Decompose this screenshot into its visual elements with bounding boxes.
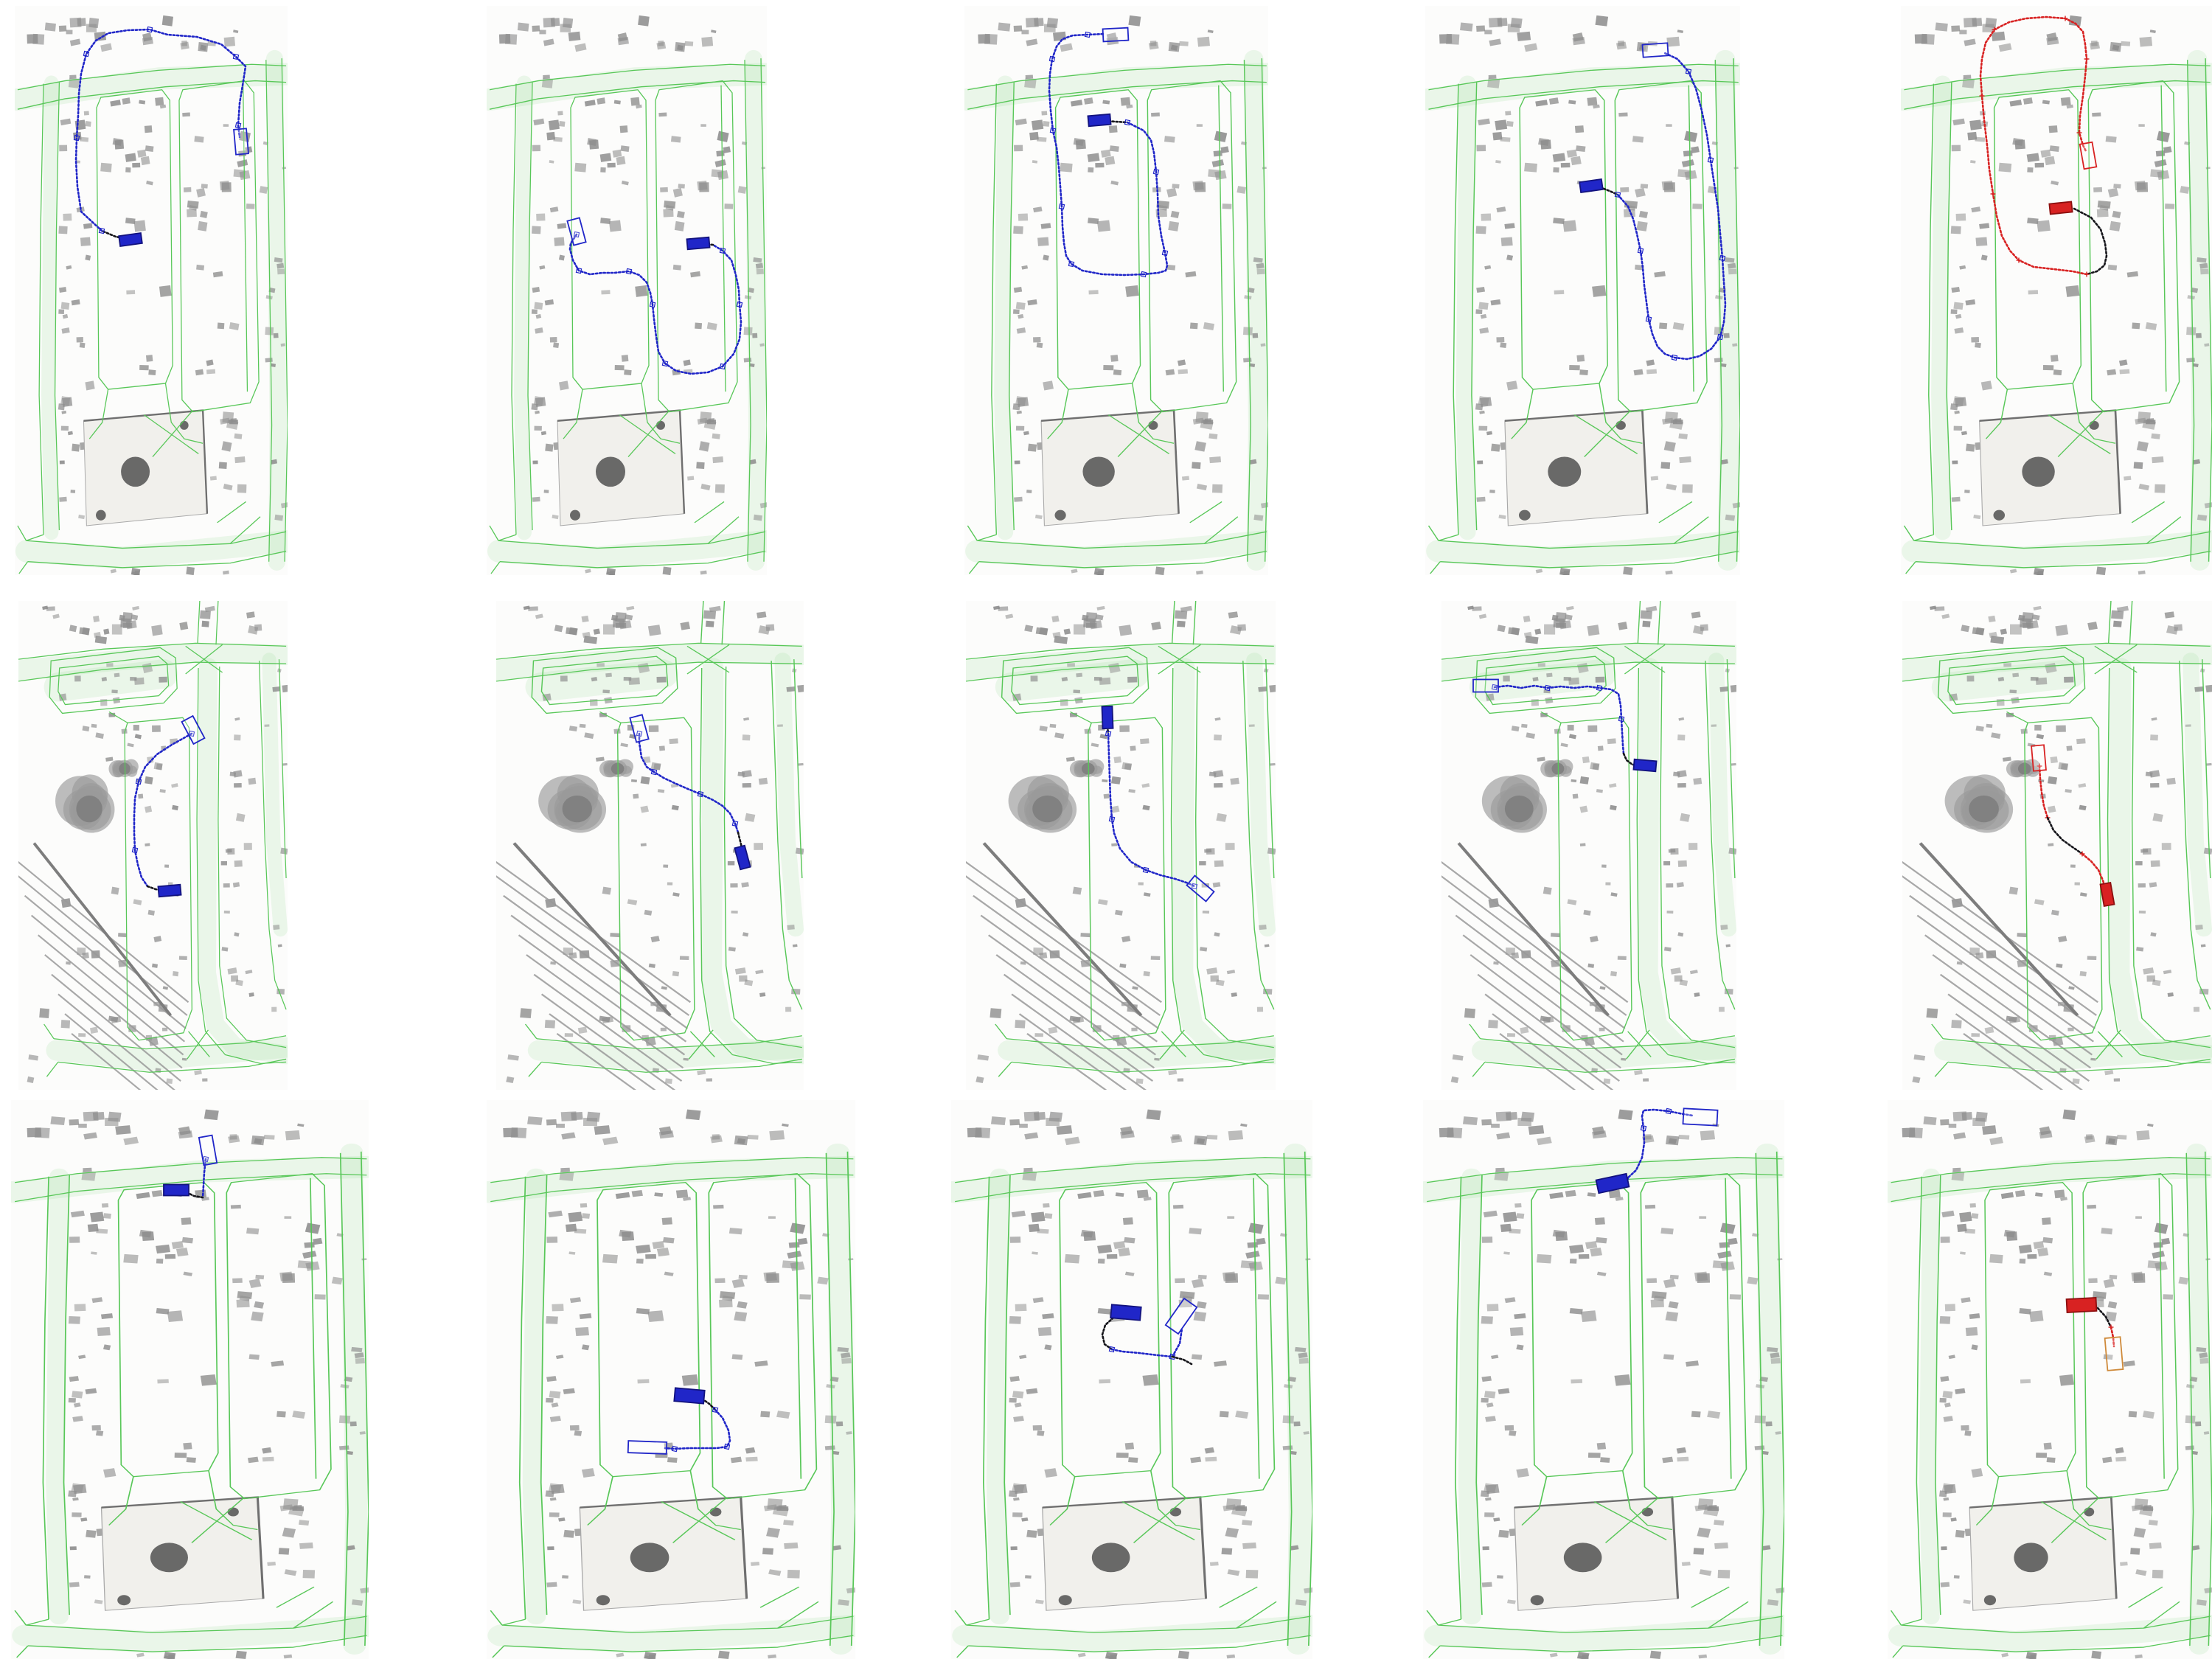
map-canvas-r2c1: [18, 601, 288, 1090]
panel-r2c4: [1441, 601, 1736, 1090]
target-box-r2c4: [1473, 680, 1498, 692]
map-canvas-r3c1: [11, 1100, 369, 1659]
figure-grid: [0, 0, 2212, 1659]
panel-r1c3: [964, 6, 1268, 575]
map-canvas-r1c2: [487, 6, 767, 575]
panel-r2c5: [1902, 601, 2212, 1090]
vehicle-box-r2c1: [158, 885, 181, 897]
vehicle-box-r3c5: [2067, 1298, 2097, 1312]
panel-r2c3: [966, 601, 1276, 1090]
panel-r2c1: [18, 601, 288, 1090]
panel-r1c4: [1425, 6, 1740, 575]
vehicle-box-r1c3: [1088, 114, 1110, 127]
map-canvas-r3c4: [1423, 1100, 1784, 1659]
vehicle-box-r3c2: [674, 1388, 704, 1403]
map-canvas-r1c5: [1901, 6, 2212, 575]
panel-r1c1: [15, 6, 288, 575]
map-canvas-r2c5: [1902, 601, 2212, 1090]
map-canvas-r3c5: [1888, 1100, 2212, 1659]
map-canvas-r1c1: [15, 6, 288, 575]
panel-r3c4: [1423, 1100, 1784, 1659]
map-canvas-r2c3: [966, 601, 1276, 1090]
panel-r3c5: [1888, 1100, 2212, 1659]
target-box-r3c4: [1683, 1108, 1717, 1125]
map-canvas-r2c4: [1441, 601, 1736, 1090]
target-box-r1c3: [1103, 28, 1129, 42]
panel-r3c2: [487, 1100, 855, 1659]
panel-r3c3: [951, 1100, 1312, 1659]
vehicle-box-r3c1: [164, 1185, 189, 1196]
vehicle-box-r2c4: [1633, 759, 1656, 772]
vehicle-box-r1c4: [1579, 179, 1603, 192]
map-canvas-r1c3: [964, 6, 1268, 575]
target-box-r1c4: [1642, 43, 1668, 57]
map-canvas-r3c3: [951, 1100, 1312, 1659]
target-box-r3c5: [2105, 1337, 2124, 1371]
panel-r2c2: [496, 601, 804, 1090]
panel-r1c5: [1901, 6, 2212, 575]
vehicle-box-r3c3: [1110, 1304, 1141, 1320]
map-canvas-r2c2: [496, 601, 804, 1090]
vehicle-box-r1c5: [2049, 201, 2072, 214]
vehicle-box-r1c2: [686, 237, 709, 250]
target-box-r1c1: [234, 128, 248, 154]
panel-r3c1: [11, 1100, 369, 1659]
vehicle-box-r2c3: [1102, 706, 1113, 728]
target-box-r3c2: [628, 1441, 667, 1454]
panel-r1c2: [487, 6, 767, 575]
map-canvas-r3c2: [487, 1100, 855, 1659]
vehicle-box-r1c1: [119, 233, 142, 246]
map-canvas-r1c4: [1425, 6, 1740, 575]
target-box-r2c5: [2031, 745, 2046, 771]
